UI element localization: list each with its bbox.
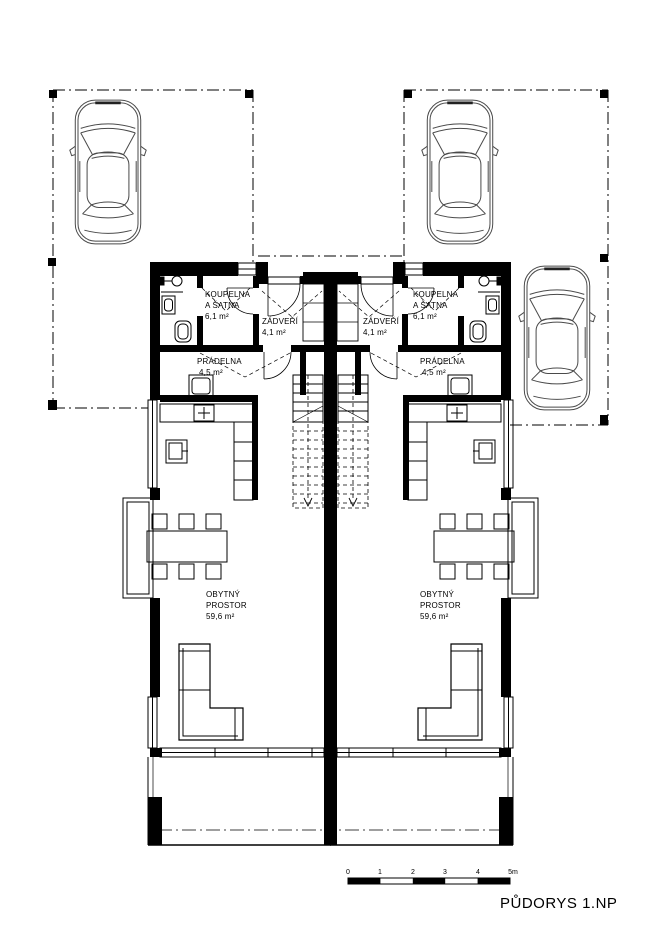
room-label-pradelna-right: PRÁDELNA 4,5 m²: [420, 357, 465, 377]
room-label-obytny-left: OBYTNÝ PROSTOR 59,6 m²: [206, 590, 247, 621]
svg-text:1: 1: [378, 869, 382, 876]
svg-text:PROSTOR: PROSTOR: [420, 601, 461, 610]
svg-text:ZÁDVEŘÍ: ZÁDVEŘÍ: [363, 317, 400, 326]
svg-text:59,6 m²: 59,6 m²: [420, 612, 449, 621]
floor-plan-page: KOUPELNA A ŠATNA 6,1 m² ZÁDVEŘÍ 4,1 m² P…: [0, 0, 645, 936]
room-label-koupelna-right: KOUPELNA A ŠATNA 6,1 m²: [413, 290, 459, 321]
party-wall: [324, 272, 337, 845]
svg-text:OBYTNÝ: OBYTNÝ: [420, 590, 455, 599]
svg-text:PROSTOR: PROSTOR: [206, 601, 247, 610]
dwelling-unit-left: [123, 262, 331, 845]
room-label-zadveri-left: ZÁDVEŘÍ 4,1 m²: [262, 317, 299, 337]
svg-text:4,5 m²: 4,5 m²: [199, 368, 223, 377]
car-top-view-icon: [422, 100, 498, 244]
room-label-koupelna-left: KOUPELNA A ŠATNA 6,1 m²: [205, 290, 251, 321]
car-top-view-icon: [519, 266, 595, 410]
svg-text:4,5 m²: 4,5 m²: [422, 368, 446, 377]
svg-text:ZÁDVEŘÍ: ZÁDVEŘÍ: [262, 317, 299, 326]
svg-text:2: 2: [411, 869, 415, 876]
svg-text:KOUPELNA: KOUPELNA: [205, 290, 251, 299]
svg-text:59,6 m²: 59,6 m²: [206, 612, 235, 621]
room-label-pradelna-left: PRÁDELNA 4,5 m²: [197, 357, 242, 377]
svg-text:KOUPELNA: KOUPELNA: [413, 290, 459, 299]
svg-text:A ŠATNA: A ŠATNA: [205, 301, 240, 310]
svg-text:5m: 5m: [508, 869, 518, 876]
svg-text:4: 4: [476, 869, 480, 876]
svg-text:3: 3: [443, 869, 447, 876]
floor-plan-drawing: KOUPELNA A ŠATNA 6,1 m² ZÁDVEŘÍ 4,1 m² P…: [0, 0, 645, 936]
svg-text:6,1 m²: 6,1 m²: [205, 312, 229, 321]
svg-text:4,1 m²: 4,1 m²: [363, 328, 387, 337]
svg-text:PRÁDELNA: PRÁDELNA: [420, 357, 465, 366]
svg-text:4,1 m²: 4,1 m²: [262, 328, 286, 337]
car-top-view-icon: [70, 100, 146, 244]
svg-text:A ŠATNA: A ŠATNA: [413, 301, 448, 310]
plan-title: PŮDORYS 1.NP: [500, 894, 617, 912]
dwelling-unit-right: [330, 262, 538, 845]
room-label-obytny-right: OBYTNÝ PROSTOR 59,6 m²: [420, 590, 461, 621]
svg-text:PRÁDELNA: PRÁDELNA: [197, 357, 242, 366]
svg-text:0: 0: [346, 869, 350, 876]
svg-text:6,1 m²: 6,1 m²: [413, 312, 437, 321]
svg-text:OBYTNÝ: OBYTNÝ: [206, 590, 241, 599]
room-label-zadveri-right: ZÁDVEŘÍ 4,1 m²: [363, 317, 400, 337]
scale-bar: 0 1 2 3 4 5m: [346, 869, 518, 884]
